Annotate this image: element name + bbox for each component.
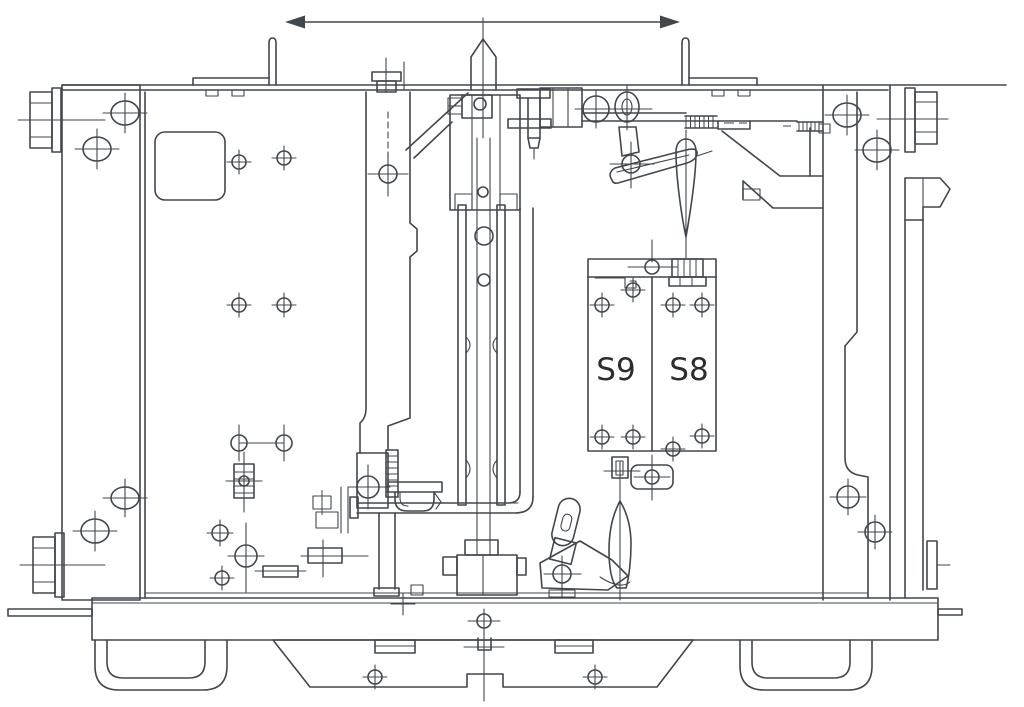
auxiliary-switch-box: S9 S8 [588,240,716,461]
left-panel-holes [73,93,147,551]
slanted-bracket [718,121,823,208]
left-angle-bracket [193,78,269,96]
arrow-right-head [660,16,680,29]
arrow-left-head [285,16,305,29]
bottom-center-block [443,540,526,595]
technical-drawing-canvas: S9 S8 [0,0,1024,707]
mid-left-holes [226,146,296,512]
assembly-drawing: S9 S8 [0,0,1024,707]
turnbuckle [226,452,262,512]
left-skid [95,640,227,690]
bottom-left-cluster [207,520,368,592]
label-s9: S9 [596,352,635,388]
latch-pointer [905,178,950,220]
center-anchor [464,609,504,701]
left-guide-wheel-top [18,88,105,152]
diagonal-brace [406,93,468,150]
rack-hatch-left [685,116,717,128]
left-pin [269,38,276,85]
base-rail [8,593,962,701]
rod-bracket [348,453,390,509]
lower-linkage [540,455,673,600]
right-skid [740,640,872,690]
label-s8: S8 [669,352,708,388]
left-base-pin [8,609,92,616]
right-pin [682,38,689,85]
terminal-block [669,259,706,286]
rod-end-cluster [313,487,348,533]
right-angle-bracket [689,78,757,96]
latch-lever [540,541,630,598]
left-side-panel [18,85,225,600]
center-guide-column [448,18,551,555]
operating-rod [313,208,533,596]
right-side-panel [819,85,950,600]
nameplate-rounded-square [155,132,225,200]
upper-linkage [540,85,823,258]
adjuster-bolt [508,89,551,159]
dimension-arrow [269,16,689,86]
right-base-pin [938,609,962,615]
spring-plate [360,58,468,453]
